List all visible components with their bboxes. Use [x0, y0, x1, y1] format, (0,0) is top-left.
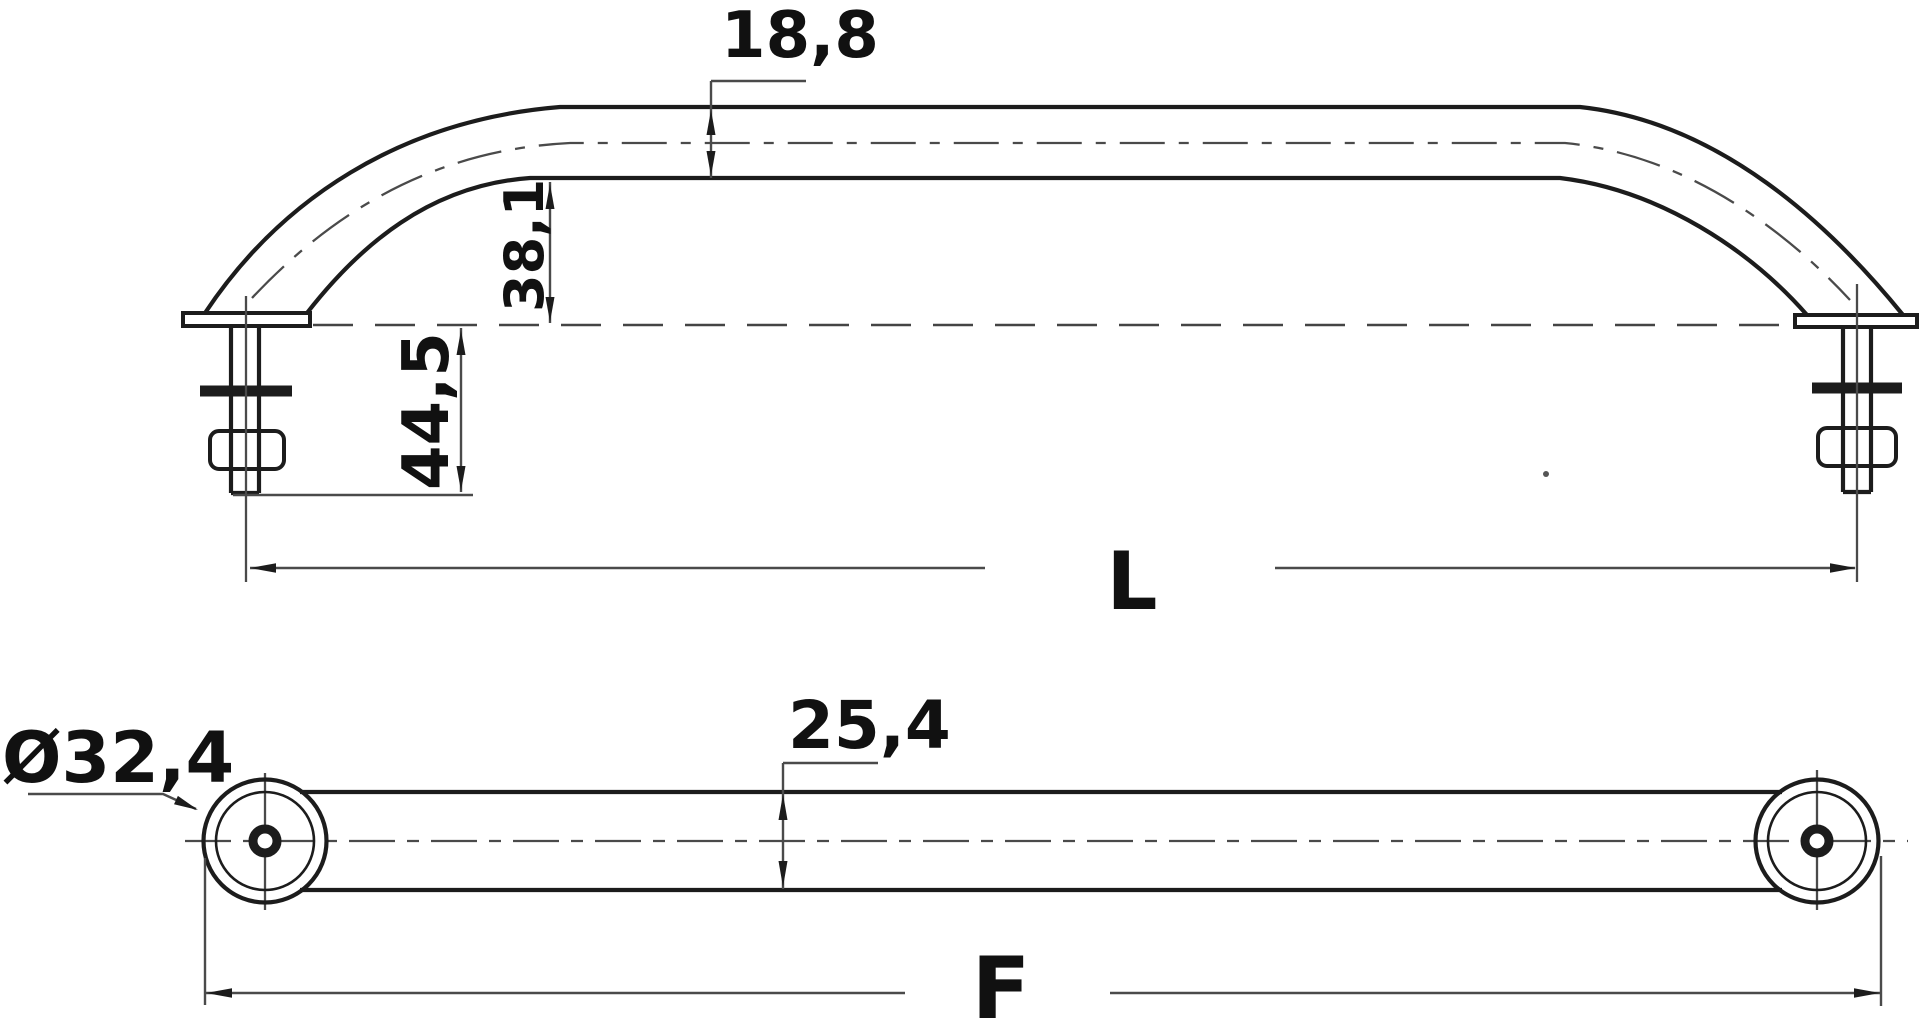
dim-tube-width-arrow-down [779, 861, 788, 887]
dim-fixing-length-label: F [972, 939, 1031, 1024]
tube-outer-edge [205, 107, 1903, 315]
dim-tube-diameter: 18,8 [707, 0, 879, 178]
plan-view: Ø32,4 25,4 F [2, 687, 1908, 1024]
technical-drawing-canvas: 18,8 38,1 44,5 L [0, 0, 1920, 1024]
dim-fixing-length: F [205, 856, 1881, 1024]
side-view: 18,8 38,1 44,5 L [183, 0, 1917, 628]
dim-length-arrow-left [250, 563, 276, 573]
dim-overall-length-label: L [1107, 535, 1158, 628]
dim-height-label: 38,1 [493, 179, 556, 312]
dim-flange-diameter-label: Ø32,4 [2, 717, 234, 799]
dim-height-under-rail: 38,1 [493, 179, 556, 323]
dim-overall-length: L [250, 535, 1856, 628]
dim-tube-diameter-label: 18,8 [721, 0, 879, 73]
left-stud-hub [253, 829, 277, 853]
left-stud-assembly [200, 296, 292, 582]
handrail-drawing-svg: 18,8 38,1 44,5 L [0, 0, 1920, 1024]
dim-tube-diameter-arrow-up [707, 110, 716, 135]
dim-tube-width-label: 25,4 [788, 687, 951, 764]
dim-fixing-arrow-left [206, 988, 232, 998]
dim-tube-width: 25,4 [779, 687, 951, 889]
tube-centerline [252, 143, 1850, 300]
dim-stud-length-label: 44,5 [390, 332, 464, 490]
dim-fixing-arrow-right [1854, 988, 1880, 998]
dim-tube-width-arrow-up [779, 794, 788, 820]
dim-tube-diameter-arrow-down [707, 151, 716, 176]
right-stud-hub [1805, 829, 1829, 853]
artifact-dot [1543, 471, 1549, 477]
dim-length-arrow-right [1830, 563, 1856, 573]
dim-flange-diameter: Ø32,4 [2, 717, 234, 810]
